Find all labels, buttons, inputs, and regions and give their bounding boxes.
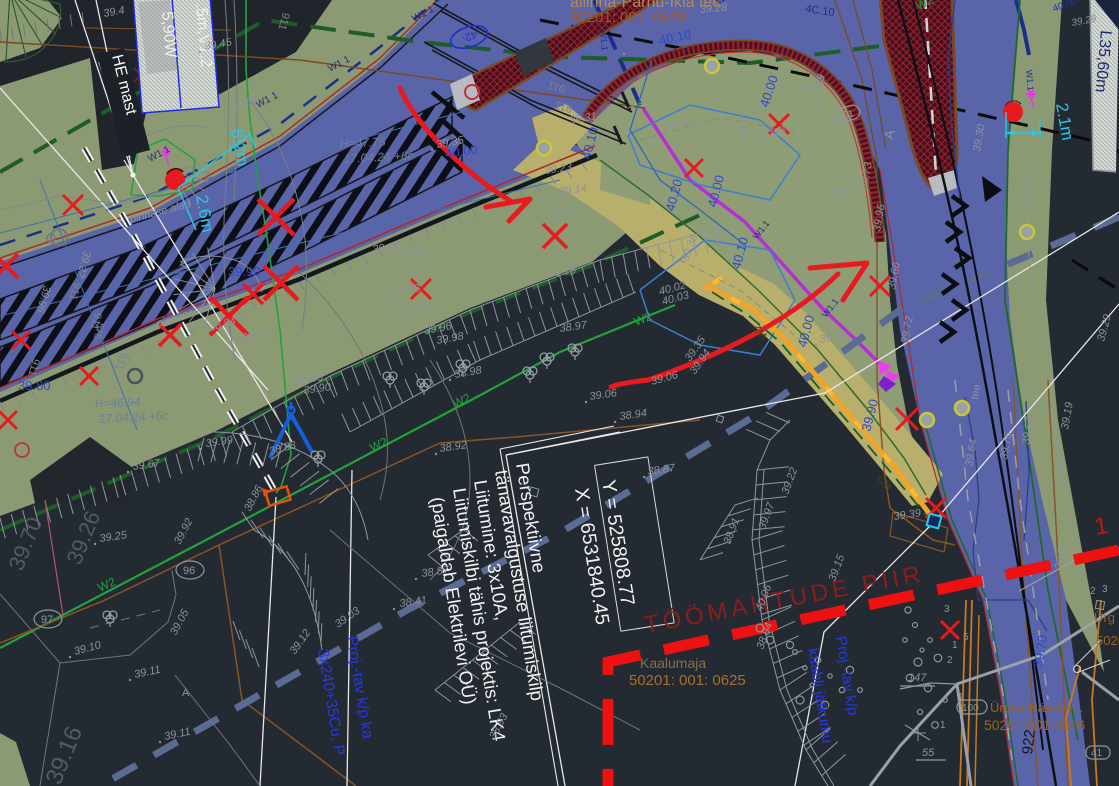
svg-text:41: 41 — [1091, 748, 1103, 759]
svg-text:2: 2 — [947, 655, 953, 666]
svg-text:Ürgita-Päädev...: Ürgita-Päädev... — [990, 700, 1083, 715]
svg-text:100: 100 — [962, 703, 979, 714]
svg-text:147: 147 — [908, 672, 927, 684]
svg-text:H=46.94: H=46.94 — [94, 395, 141, 411]
svg-text:3: 3 — [944, 604, 950, 615]
svg-text:50201: 001: 0628: 50201: 001: 0628 — [570, 9, 687, 26]
svg-text:39.28: 39.28 — [699, 2, 728, 16]
svg-text:96: 96 — [183, 565, 195, 577]
svg-text:1: 1 — [952, 640, 958, 651]
svg-text:H=47.75: H=47.75 — [339, 135, 386, 151]
svg-text:922: 922 — [1019, 729, 1039, 756]
svg-text:2: 2 — [1090, 586, 1096, 597]
svg-text:A: A — [182, 687, 190, 699]
svg-text:W1.1: W1.1 — [1024, 69, 1036, 91]
svg-text:50201: 001: 0625: 50201: 001: 0625 — [629, 672, 746, 689]
svg-text:5: 5 — [963, 632, 969, 643]
svg-text:5020: 5020 — [1096, 633, 1119, 648]
svg-text:55: 55 — [922, 747, 935, 759]
svg-text:Ürg: Ürg — [1094, 610, 1115, 625]
svg-text:1: 1 — [940, 720, 946, 731]
svg-text:3: 3 — [1102, 584, 1108, 595]
svg-text:W1.1: W1.1 — [598, 29, 610, 51]
svg-text:Kaalumaja: Kaalumaja — [640, 655, 706, 671]
svg-text:1: 1 — [958, 692, 964, 703]
svg-text:39.90: 39.90 — [228, 264, 261, 279]
svg-text:39.80: 39.80 — [18, 378, 51, 393]
svg-text:97: 97 — [41, 614, 53, 626]
